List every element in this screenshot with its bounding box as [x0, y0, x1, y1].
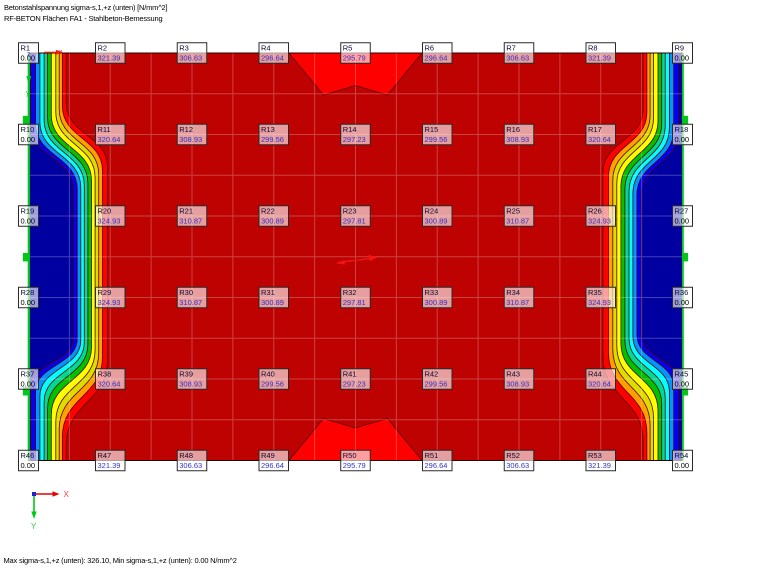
svg-text:R30: R30	[179, 288, 193, 297]
svg-text:308.93: 308.93	[506, 135, 529, 144]
svg-text:R28: R28	[21, 288, 35, 297]
svg-text:R19: R19	[21, 207, 35, 216]
svg-text:R17: R17	[588, 125, 602, 134]
svg-text:R40: R40	[261, 370, 275, 379]
svg-text:295.79: 295.79	[343, 54, 366, 63]
svg-text:297.23: 297.23	[343, 135, 366, 144]
svg-text:296.64: 296.64	[425, 461, 448, 470]
svg-text:0.00: 0.00	[21, 380, 36, 389]
svg-text:310.87: 310.87	[179, 217, 202, 226]
svg-text:320.64: 320.64	[98, 135, 121, 144]
svg-text:300.89: 300.89	[425, 298, 448, 307]
svg-text:299.56: 299.56	[425, 135, 448, 144]
svg-text:R32: R32	[343, 288, 357, 297]
svg-text:310.87: 310.87	[506, 217, 529, 226]
svg-text:320.64: 320.64	[588, 380, 611, 389]
svg-text:0.00: 0.00	[675, 217, 690, 226]
svg-text:R52: R52	[506, 451, 520, 460]
svg-text:324.93: 324.93	[588, 298, 611, 307]
svg-text:0.00: 0.00	[675, 298, 690, 307]
svg-text:308.93: 308.93	[179, 380, 202, 389]
svg-text:296.64: 296.64	[261, 54, 284, 63]
svg-text:R31: R31	[261, 288, 275, 297]
svg-text:Max sigma-s,1,+z (unten): 326.: Max sigma-s,1,+z (unten): 326.10, Min si…	[4, 556, 237, 565]
svg-text:0.00: 0.00	[675, 54, 690, 63]
svg-text:308.93: 308.93	[179, 135, 202, 144]
svg-text:R47: R47	[98, 451, 112, 460]
svg-text:R39: R39	[179, 370, 193, 379]
svg-text:306.63: 306.63	[179, 54, 202, 63]
svg-text:z: z	[27, 52, 31, 59]
svg-text:R13: R13	[261, 125, 275, 134]
svg-text:R6: R6	[425, 44, 435, 53]
svg-text:297.81: 297.81	[343, 298, 366, 307]
svg-text:R41: R41	[343, 370, 357, 379]
svg-text:R23: R23	[343, 207, 357, 216]
svg-text:0.00: 0.00	[21, 135, 36, 144]
svg-text:300.89: 300.89	[425, 217, 448, 226]
svg-text:R45: R45	[675, 370, 689, 379]
svg-text:300.89: 300.89	[261, 217, 284, 226]
svg-text:R3: R3	[179, 44, 189, 53]
svg-text:297.81: 297.81	[343, 217, 366, 226]
svg-text:R35: R35	[588, 288, 602, 297]
svg-text:297.23: 297.23	[343, 380, 366, 389]
svg-text:R7: R7	[506, 44, 516, 53]
svg-text:x: x	[59, 49, 63, 56]
svg-text:R48: R48	[179, 451, 193, 460]
svg-text:324.93: 324.93	[98, 298, 121, 307]
svg-text:Y: Y	[31, 522, 37, 531]
svg-text:R9: R9	[675, 44, 685, 53]
svg-text:299.56: 299.56	[261, 135, 284, 144]
svg-text:R53: R53	[588, 451, 602, 460]
svg-text:R21: R21	[179, 207, 193, 216]
svg-text:R43: R43	[506, 370, 520, 379]
svg-text:324.93: 324.93	[98, 217, 121, 226]
svg-text:R24: R24	[425, 207, 439, 216]
svg-text:R16: R16	[506, 125, 520, 134]
svg-text:300.89: 300.89	[261, 298, 284, 307]
svg-text:R4: R4	[261, 44, 271, 53]
svg-text:0.00: 0.00	[21, 461, 36, 470]
svg-text:324.93: 324.93	[588, 217, 611, 226]
svg-text:R51: R51	[425, 451, 439, 460]
svg-text:R2: R2	[98, 44, 108, 53]
svg-text:321.39: 321.39	[98, 54, 121, 63]
svg-text:0.00: 0.00	[675, 135, 690, 144]
svg-text:R5: R5	[343, 44, 353, 53]
svg-text:320.64: 320.64	[588, 135, 611, 144]
svg-text:310.87: 310.87	[506, 298, 529, 307]
svg-text:296.64: 296.64	[425, 54, 448, 63]
svg-text:y: y	[26, 90, 30, 97]
svg-text:310.87: 310.87	[179, 298, 202, 307]
svg-text:308.93: 308.93	[506, 380, 529, 389]
svg-text:299.56: 299.56	[261, 380, 284, 389]
svg-text:306.63: 306.63	[179, 461, 202, 470]
svg-text:R37: R37	[21, 370, 35, 379]
svg-text:R10: R10	[21, 125, 35, 134]
svg-text:R8: R8	[588, 44, 598, 53]
svg-text:R46: R46	[21, 451, 35, 460]
svg-text:320.64: 320.64	[98, 380, 121, 389]
svg-text:R11: R11	[98, 125, 111, 134]
svg-text:295.79: 295.79	[343, 461, 366, 470]
svg-text:0.00: 0.00	[675, 461, 690, 470]
svg-text:R27: R27	[675, 207, 689, 216]
svg-text:0.00: 0.00	[21, 298, 36, 307]
svg-text:R15: R15	[425, 125, 439, 134]
svg-text:X: X	[64, 490, 70, 499]
svg-text:321.39: 321.39	[98, 461, 121, 470]
svg-text:R44: R44	[588, 370, 602, 379]
svg-text:R22: R22	[261, 207, 275, 216]
svg-text:R34: R34	[506, 288, 520, 297]
svg-text:299.56: 299.56	[425, 380, 448, 389]
svg-text:0.00: 0.00	[21, 217, 36, 226]
svg-text:R54: R54	[675, 451, 689, 460]
svg-text:R25: R25	[506, 207, 520, 216]
svg-text:R36: R36	[675, 288, 689, 297]
svg-text:306.63: 306.63	[506, 461, 529, 470]
svg-text:R20: R20	[98, 207, 112, 216]
svg-text:306.63: 306.63	[506, 54, 529, 63]
svg-text:R18: R18	[675, 125, 689, 134]
svg-text:0.00: 0.00	[675, 380, 690, 389]
svg-text:R49: R49	[261, 451, 275, 460]
svg-text:Betonstahlspannung sigma-s,1,+: Betonstahlspannung sigma-s,1,+z (unten) …	[4, 3, 167, 12]
svg-text:321.39: 321.39	[588, 54, 611, 63]
svg-text:R12: R12	[179, 125, 193, 134]
svg-text:R26: R26	[588, 207, 602, 216]
svg-text:R50: R50	[343, 451, 357, 460]
svg-text:R29: R29	[98, 288, 112, 297]
svg-text:R42: R42	[425, 370, 439, 379]
svg-text:R14: R14	[343, 125, 357, 134]
svg-text:R38: R38	[98, 370, 112, 379]
svg-text:321.39: 321.39	[588, 461, 611, 470]
svg-text:RF-BETON Flächen FA1 - Stahlbe: RF-BETON Flächen FA1 - Stahlbeton-Bemess…	[4, 14, 162, 23]
svg-text:R33: R33	[425, 288, 439, 297]
svg-text:296.64: 296.64	[261, 461, 284, 470]
